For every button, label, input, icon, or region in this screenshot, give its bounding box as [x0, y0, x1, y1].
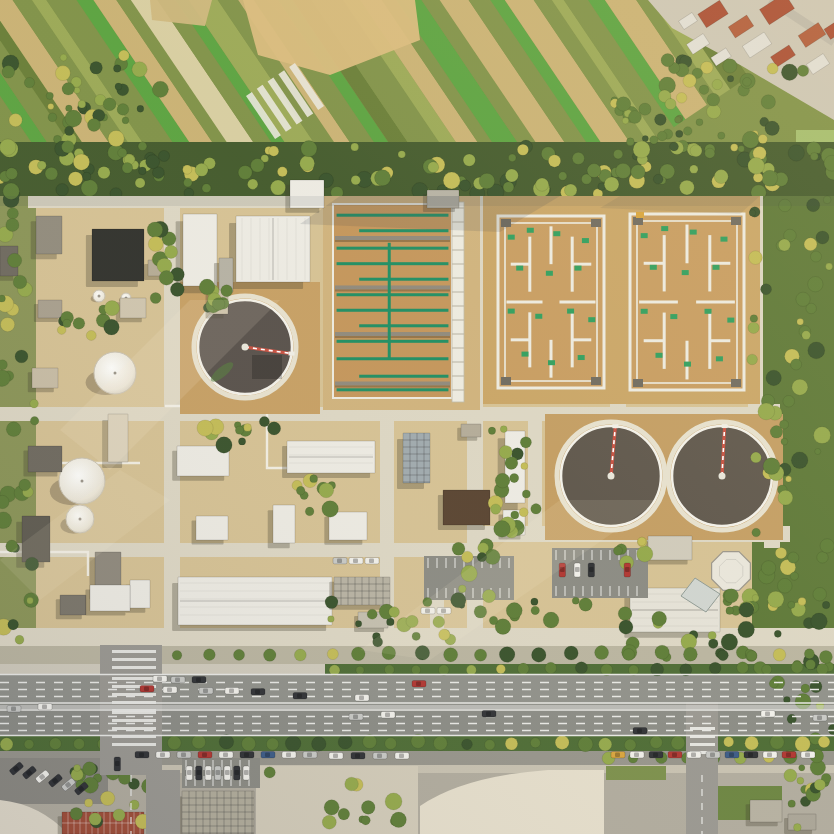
aerial-photo-wastewater-treatment-plant: [0, 0, 834, 834]
aerial-scene: [0, 0, 834, 834]
global-light-overlay: [0, 0, 834, 834]
layer-light: [0, 0, 834, 834]
